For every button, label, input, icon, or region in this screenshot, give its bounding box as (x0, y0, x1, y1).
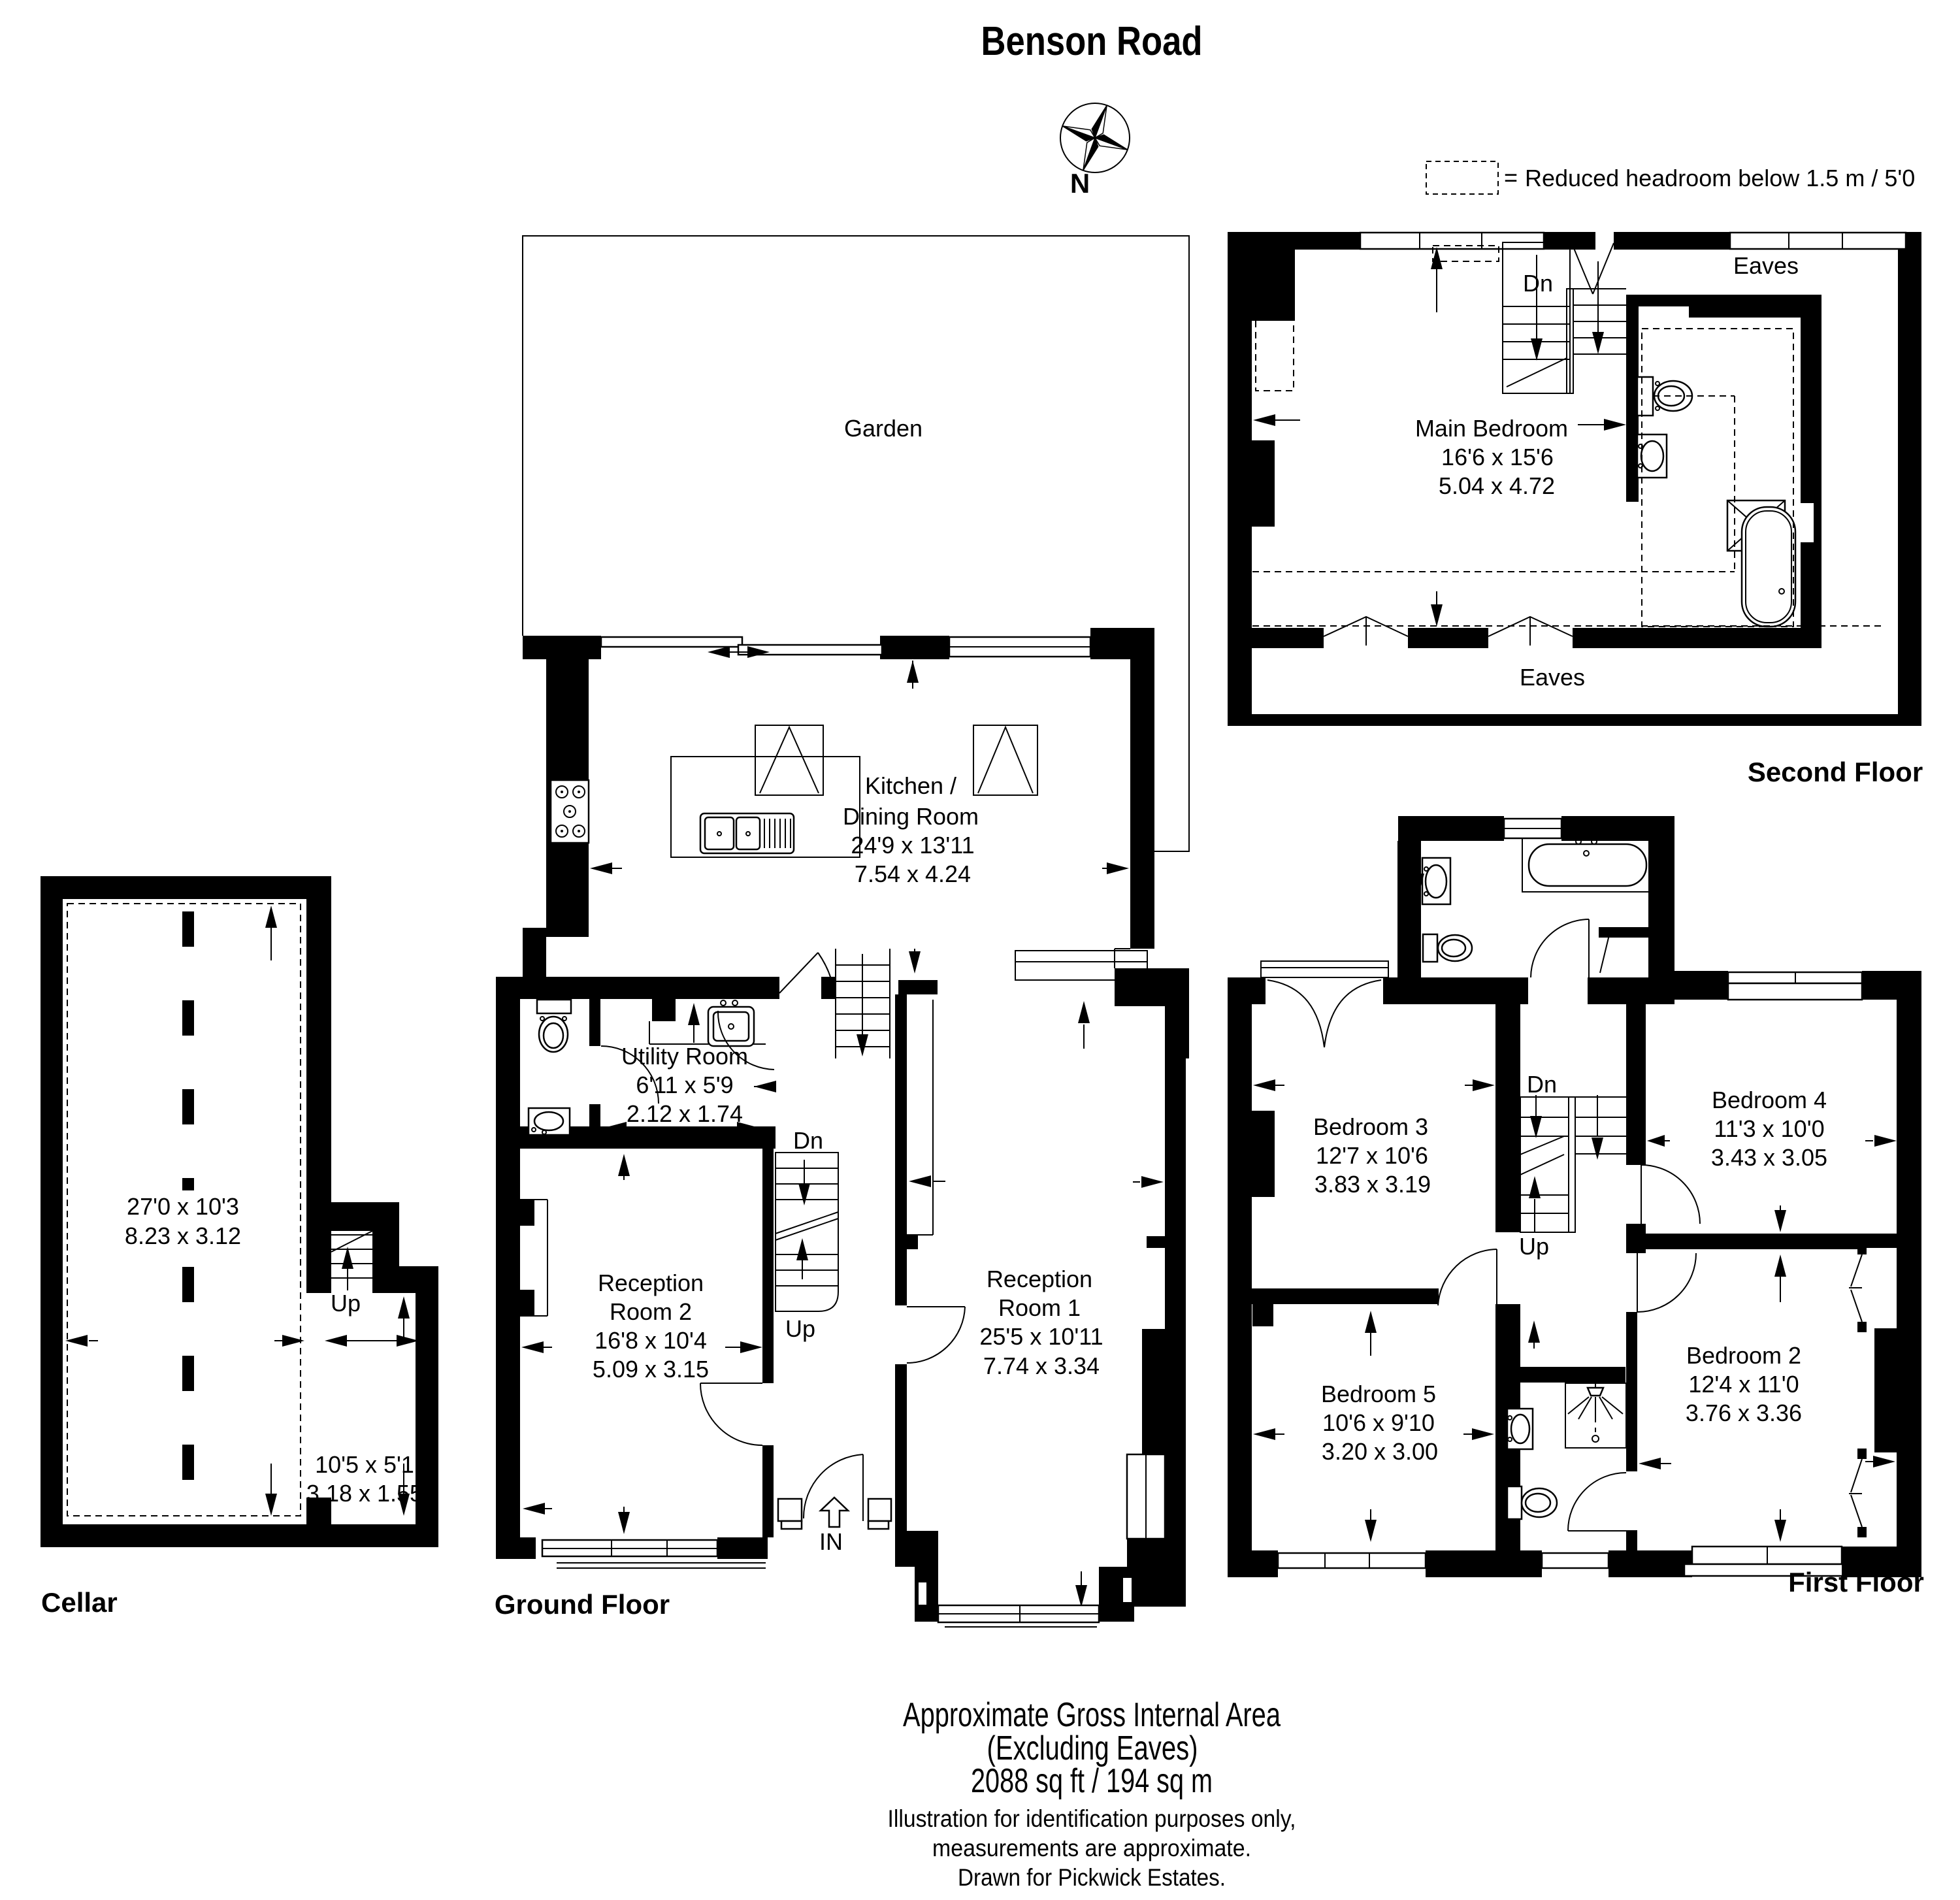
svg-text:First Floor: First Floor (1788, 1567, 1924, 1597)
svg-text:Illustration for identificatio: Illustration for identification purposes… (888, 1805, 1296, 1832)
svg-text:5.09 x 3.15: 5.09 x 3.15 (593, 1356, 709, 1383)
svg-text:11'3 x 10'0: 11'3 x 10'0 (1714, 1115, 1824, 1142)
svg-text:10'5 x 5'1: 10'5 x 5'1 (315, 1451, 414, 1478)
svg-text:=: = (1504, 164, 1518, 191)
svg-text:Reception: Reception (987, 1266, 1092, 1292)
svg-text:2088 sq ft / 194 sq m: 2088 sq ft / 194 sq m (971, 1762, 1213, 1800)
svg-text:Room 1: Room 1 (998, 1294, 1081, 1321)
svg-text:measurements are approximate.: measurements are approximate. (932, 1835, 1251, 1861)
svg-text:3.20 x 3.00: 3.20 x 3.00 (1322, 1438, 1438, 1465)
svg-text:7.54 x 4.24: 7.54 x 4.24 (855, 860, 971, 887)
svg-text:Dn: Dn (793, 1127, 823, 1154)
svg-text:Kitchen /: Kitchen / (865, 772, 956, 799)
svg-text:Second Floor: Second Floor (1748, 757, 1923, 787)
svg-text:Reduced headroom below 1.5 m /: Reduced headroom below 1.5 m / 5'0 (1525, 165, 1915, 191)
svg-text:Drawn for Pickwick Estates.: Drawn for Pickwick Estates. (958, 1864, 1226, 1891)
svg-text:3.43 x 3.05: 3.43 x 3.05 (1711, 1144, 1827, 1171)
svg-text:Bedroom 5: Bedroom 5 (1321, 1381, 1436, 1407)
svg-text:Ground Floor: Ground Floor (495, 1589, 670, 1620)
svg-text:16'6 x 15'6: 16'6 x 15'6 (1441, 444, 1554, 470)
svg-text:Cellar: Cellar (41, 1587, 118, 1618)
svg-text:Garden: Garden (844, 415, 923, 442)
svg-text:Up: Up (331, 1290, 361, 1317)
svg-text:Bedroom 4: Bedroom 4 (1712, 1087, 1827, 1113)
svg-text:7.74 x 3.34: 7.74 x 3.34 (983, 1352, 1100, 1379)
svg-text:N: N (1070, 168, 1090, 199)
svg-text:IN: IN (819, 1528, 843, 1555)
svg-text:Dining Room: Dining Room (843, 803, 979, 830)
svg-text:Reception: Reception (598, 1269, 704, 1296)
svg-text:Up: Up (785, 1315, 815, 1342)
svg-text:12'4 x 11'0: 12'4 x 11'0 (1688, 1371, 1799, 1398)
svg-text:3.83 x 3.19: 3.83 x 3.19 (1315, 1171, 1431, 1198)
svg-text:Main Bedroom: Main Bedroom (1415, 415, 1568, 442)
svg-text:16'8 x 10'4: 16'8 x 10'4 (595, 1327, 707, 1354)
svg-text:Bedroom 2: Bedroom 2 (1686, 1342, 1801, 1369)
svg-text:12'7 x 10'6: 12'7 x 10'6 (1316, 1142, 1428, 1169)
svg-text:3.76 x 3.36: 3.76 x 3.36 (1686, 1400, 1802, 1426)
svg-text:24'9 x 13'11: 24'9 x 13'11 (851, 832, 974, 859)
svg-text:Approximate Gross Internal Are: Approximate Gross Internal Area (903, 1696, 1281, 1734)
svg-text:Eaves: Eaves (1520, 664, 1585, 691)
svg-text:Bedroom 3: Bedroom 3 (1313, 1113, 1428, 1140)
svg-text:Room 2: Room 2 (610, 1298, 692, 1325)
svg-text:Up: Up (1519, 1233, 1549, 1260)
svg-text:5.04 x 4.72: 5.04 x 4.72 (1439, 472, 1555, 499)
svg-text:Dn: Dn (1527, 1071, 1557, 1098)
svg-text:Eaves: Eaves (1733, 252, 1799, 279)
svg-text:10'6 x 9'10: 10'6 x 9'10 (1322, 1409, 1435, 1436)
svg-text:Dn: Dn (1523, 270, 1553, 297)
svg-text:25'5 x 10'11: 25'5 x 10'11 (979, 1323, 1103, 1350)
svg-text:Benson Road: Benson Road (981, 19, 1203, 64)
svg-text:2.12 x 1.74: 2.12 x 1.74 (627, 1100, 743, 1127)
svg-text:8.23 x 3.12: 8.23 x 3.12 (125, 1222, 241, 1249)
svg-text:27'0 x 10'3: 27'0 x 10'3 (127, 1193, 239, 1220)
